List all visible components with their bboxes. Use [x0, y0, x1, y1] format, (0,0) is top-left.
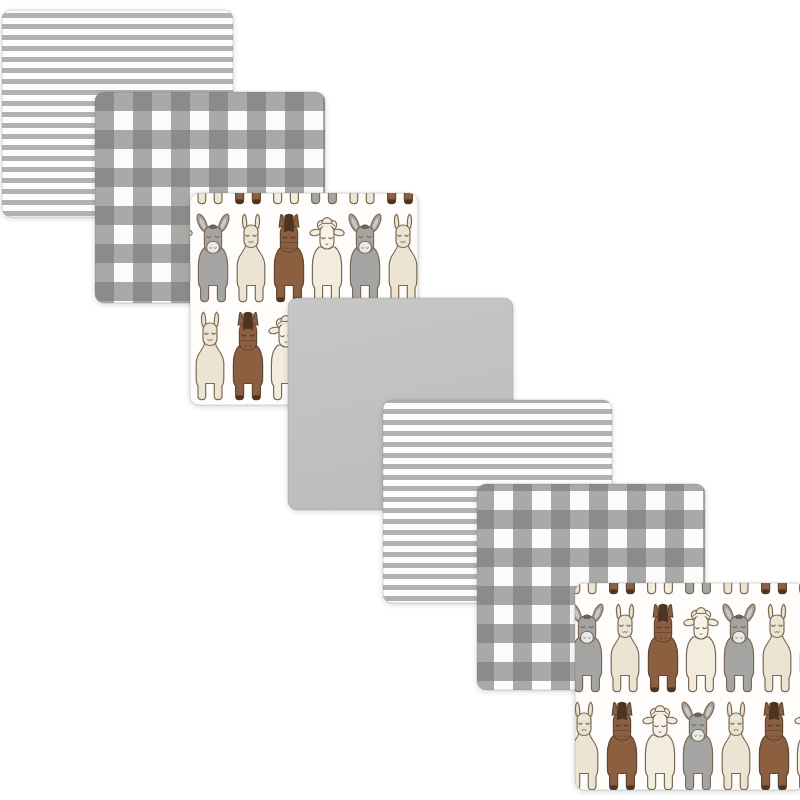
animal-blanket-front [575, 583, 800, 790]
blanket-set-product-photo [0, 0, 800, 800]
blankets-illustration [0, 0, 800, 800]
